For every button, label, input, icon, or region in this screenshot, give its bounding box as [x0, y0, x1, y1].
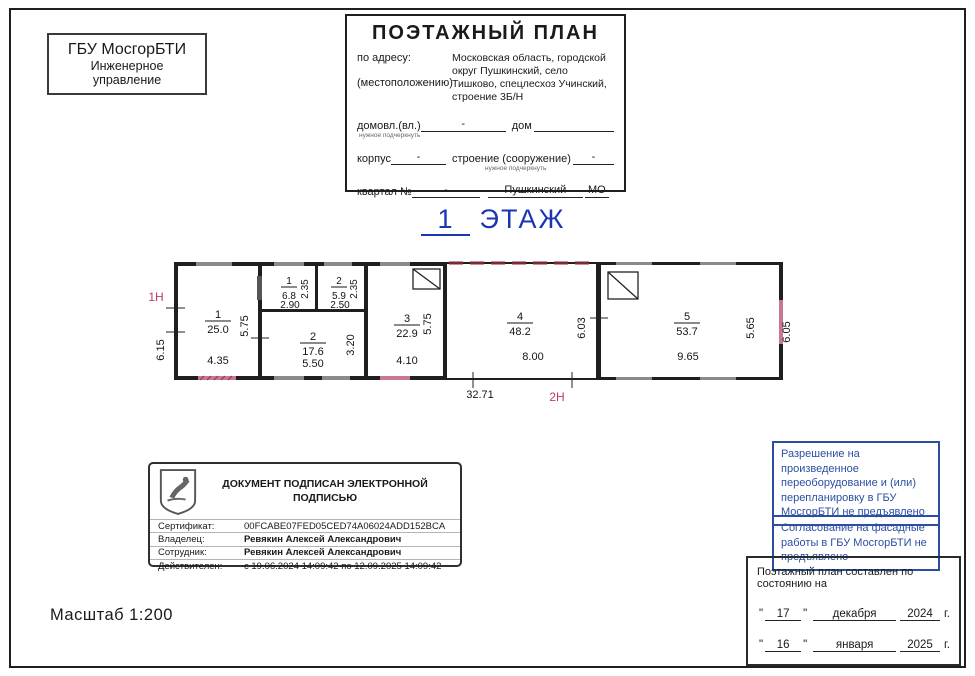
zone-label-1n: 1Н [148, 290, 163, 304]
room-1-height: 5.75 [239, 315, 251, 336]
stamp-row-certificate: Сертификат: 00FCABE07FED05CED74A06024ADD… [150, 519, 460, 532]
scale-label: Масштаб 1:200 [50, 606, 173, 625]
date-1-suffix: г. [944, 608, 950, 620]
kvartal-label: квартал № [357, 186, 412, 198]
quote-mark: " [759, 608, 763, 620]
room-1a-width: 2.90 [280, 300, 300, 311]
mo-suffix: МО [585, 184, 609, 198]
floor-label: ЭТАЖ [480, 204, 566, 234]
date-2-month: января [813, 639, 896, 652]
date-box: Поэтажный план составлен по состоянию на… [746, 556, 961, 666]
stamp-label: Сертификат: [158, 521, 244, 532]
stamp-label: Владелец: [158, 534, 244, 545]
address-block: по адресу: (местоположению) Московская о… [357, 52, 614, 105]
room-1-width: 4.35 [207, 355, 228, 367]
org-box: ГБУ МосгорБТИ Инженерное управление [47, 33, 207, 95]
floor-plan: 1 25.0 4.35 5.75 6.15 1 6.8 2.90 2.35 2 … [138, 248, 828, 418]
room-4-area: 48.2 [509, 326, 530, 338]
org-dept-line1: Инженерное [49, 59, 205, 73]
notice-reequipment: Разрешение на произведенное переоборудов… [772, 441, 940, 526]
room-3-height: 5.75 [422, 313, 434, 334]
outer-height-left: 6.15 [155, 339, 167, 360]
room-5-area: 53.7 [676, 326, 697, 338]
korpus-field: - [391, 151, 446, 165]
floor-number: 1 [421, 204, 470, 236]
stroenie-field: - [573, 151, 614, 165]
date-row-2: " 16 " января 2025 г. [757, 639, 950, 652]
org-name: ГБУ МосгорБТИ [49, 41, 205, 59]
room-1-number: 1 [215, 309, 221, 321]
district-field: Пушкинский [488, 184, 583, 198]
address-label-2: (местоположению) [357, 77, 452, 89]
room-2-area: 17.6 [302, 346, 323, 358]
header-box: ПОЭТАЖНЫЙ ПЛАН по адресу: (местоположени… [345, 14, 626, 192]
room-5-number: 5 [684, 311, 690, 323]
stamp-title: ДОКУМЕНТ ПОДПИСАН ЭЛЕКТРОННОЙ ПОДПИСЬЮ [198, 478, 452, 505]
room-2-width: 5.50 [302, 358, 323, 370]
stamp-value: с 19.06.2024 14:09:42 по 12.09.2025 14:0… [244, 561, 452, 572]
room-4-height: 6.03 [576, 317, 588, 338]
quote-mark: " [803, 639, 807, 651]
room-1a-height: 2.35 [300, 279, 311, 299]
stamp-header: ДОКУМЕНТ ПОДПИСАН ЭЛЕКТРОННОЙ ПОДПИСЬЮ [150, 464, 460, 519]
document-page: ГБУ МосгорБТИ Инженерное управление ПОЭТ… [0, 0, 975, 676]
stamp-value: 00FCABE07FED05CED74A06024ADD152BCA [244, 521, 452, 532]
form-row-building: корпус - строение (сооружение) - нужное … [357, 151, 614, 165]
quote-mark: " [803, 608, 807, 620]
underline-note: нужное подчеркнуть [359, 132, 420, 139]
floor-title: 1ЭТАЖ [398, 204, 588, 235]
date-1-year: 2024 [900, 608, 940, 621]
room-1-area: 25.0 [207, 324, 228, 336]
stamp-label: Сотрудник: [158, 547, 244, 558]
document-title: ПОЭТАЖНЫЙ ПЛАН [357, 22, 614, 45]
stamp-value: Ревякин Алексей Александрович [244, 534, 452, 545]
zone-label-2n: 2Н [549, 390, 564, 404]
moscow-coat-of-arms-icon [158, 468, 198, 516]
room-5-width: 9.65 [677, 351, 698, 363]
address-value: Московская область, городской округ Пушк… [452, 52, 614, 105]
house-label: дом [512, 120, 532, 132]
form-row-kvartal: квартал № - Пушкинский МО [357, 184, 614, 198]
stamp-row-employee: Сотрудник: Ревякин Алексей Александрович [150, 546, 460, 559]
quote-mark: " [759, 639, 763, 651]
window-symbols [196, 262, 736, 380]
address-label: по адресу: [357, 52, 452, 64]
address-labels: по адресу: (местоположению) [357, 52, 452, 105]
house-field [534, 131, 614, 132]
org-dept-line2: управление [49, 73, 205, 87]
date-row-1: " 17 " декабря 2024 г. [757, 608, 950, 621]
underline-note-2: нужное подчеркнуть [485, 165, 546, 172]
date-1-day: 17 [765, 608, 801, 621]
room-2a-number: 2 [336, 276, 342, 287]
date-2-day: 16 [765, 639, 801, 652]
room-3-area: 22.9 [396, 328, 417, 340]
stroenie-label: строение (сооружение) [452, 153, 571, 165]
room-2a-width: 2.50 [330, 300, 350, 311]
stamp-row-owner: Владелец: Ревякин Алексей Александрович [150, 532, 460, 545]
household-field: - [421, 118, 506, 132]
date-box-title: Поэтажный план составлен по состоянию на [757, 566, 950, 590]
room-4-number: 4 [517, 311, 523, 323]
room-2-height: 3.20 [345, 334, 357, 355]
date-2-year: 2025 [900, 639, 940, 652]
date-2-suffix: г. [944, 639, 950, 651]
signature-stamp: ДОКУМЕНТ ПОДПИСАН ЭЛЕКТРОННОЙ ПОДПИСЬЮ С… [148, 462, 462, 567]
outer-height-right: 6.05 [781, 321, 793, 342]
korpus-label: корпус [357, 153, 391, 165]
stamp-value: Ревякин Алексей Александрович [244, 547, 452, 558]
form-row-household: домовл.(вл.) - дом нужное подчеркнуть [357, 118, 614, 132]
date-1-month: декабря [813, 608, 896, 621]
room-2-number: 2 [310, 331, 316, 343]
stamp-row-validity: Действителен: с 19.06.2024 14:09:42 по 1… [150, 559, 460, 572]
room-3-width: 4.10 [396, 355, 417, 367]
room-3-number: 3 [404, 313, 410, 325]
room-1a-number: 1 [286, 276, 292, 287]
room-2a-height: 2.35 [349, 279, 360, 299]
household-label: домовл.(вл.) [357, 120, 421, 132]
room-5-height: 5.65 [745, 317, 757, 338]
overall-width: 32.71 [466, 389, 494, 401]
kvartal-field: - [412, 184, 480, 198]
room-4-width: 8.00 [522, 351, 543, 363]
stamp-label: Действителен: [158, 561, 244, 572]
